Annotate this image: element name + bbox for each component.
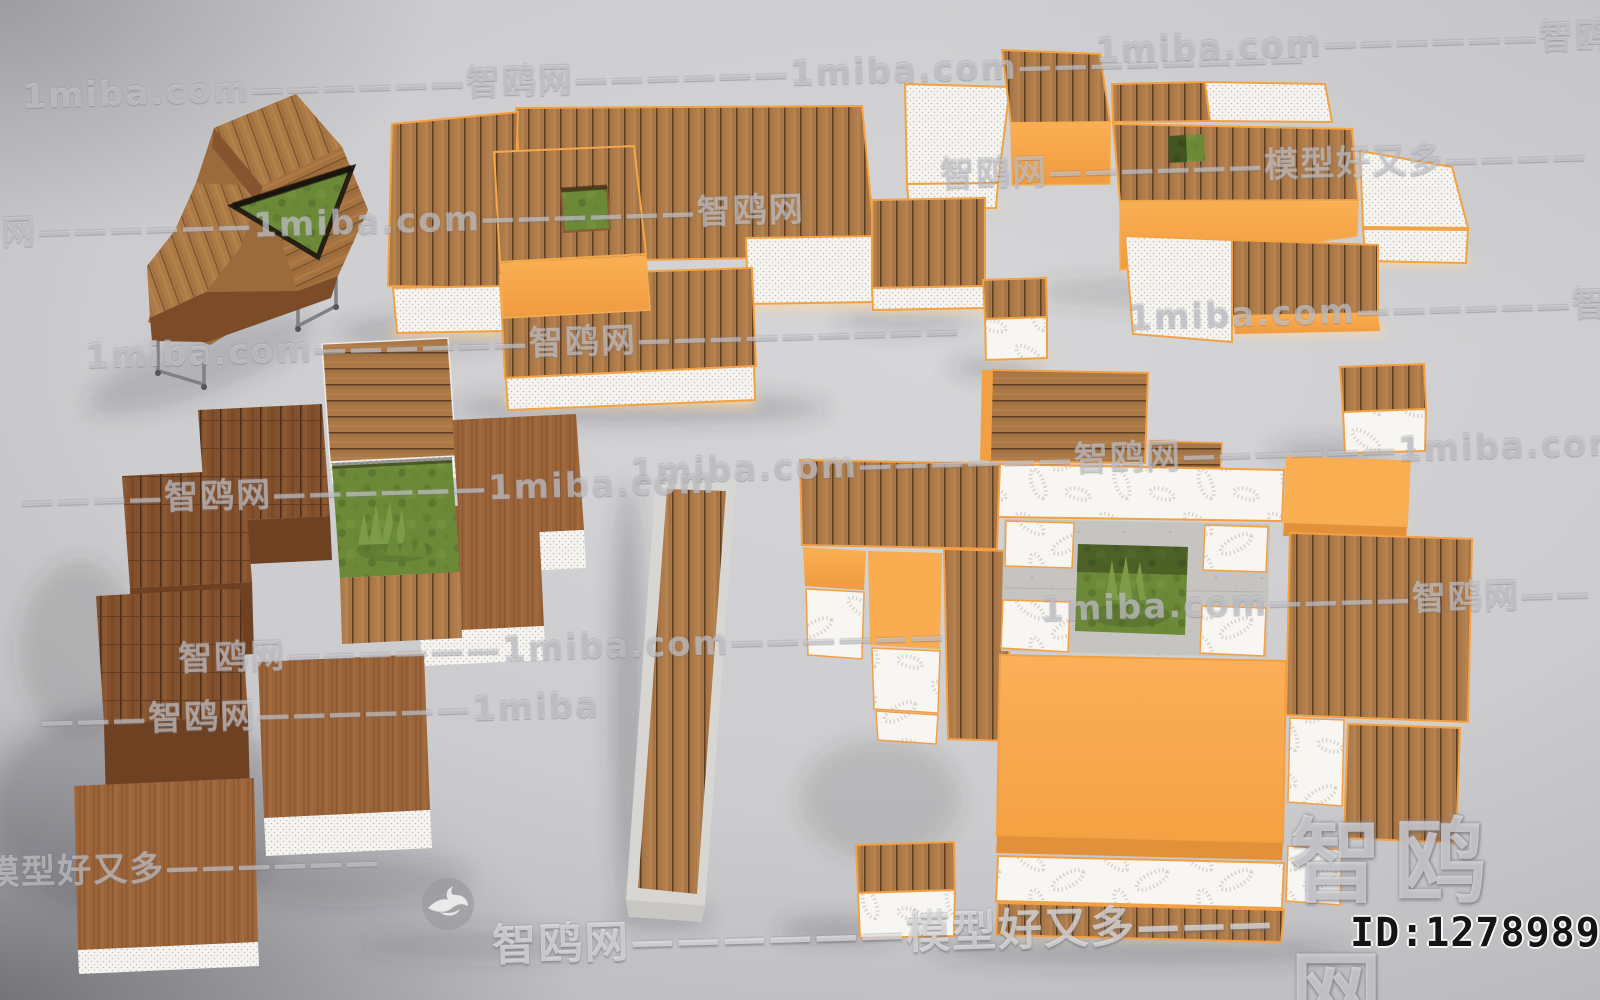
orange-face [868,551,942,649]
deck-orange-edge [1233,313,1380,334]
back-deck-white-skirt [746,236,877,304]
orange-face [803,547,866,590]
leaf-tile [1200,606,1266,656]
box-top [122,470,252,588]
box-top [322,338,456,462]
box-top [96,588,248,724]
planter-shade [561,187,607,190]
raised-orange-box [1284,457,1410,527]
inset-planter-shade [1168,135,1187,163]
raised-planter-box-front [500,256,650,318]
leaf-panel [872,648,940,713]
l-deck-arm [800,460,1000,549]
right-deck-upper [1286,533,1472,722]
platform-cluster-center [388,106,877,410]
small-cube-top [983,278,1047,319]
leaf-tile [1005,521,1074,568]
wood-box-orange-front [1011,122,1110,185]
leaf-tile [1001,600,1070,652]
small-cube-bottom-center [856,842,955,938]
long-bench [626,478,736,922]
leaf-band-top [998,464,1284,521]
leaf-band-bottom [996,856,1284,908]
wood-box-top [1002,50,1110,123]
box-top [74,778,258,950]
white-box-top [905,84,1010,184]
low-wood-deck [872,198,985,288]
top-deck [990,370,1148,463]
leaf-panel [876,711,938,744]
deck-wood-top [1232,240,1378,316]
render-stage: 1miba.com——————智鸥网—————— 1miba.com——————… [0,0,1600,1000]
left-deck-white-skirt [393,286,503,333]
half-white-panel [1205,82,1332,122]
white-cube-top [1360,151,1468,228]
leaf-panel [1286,846,1342,905]
small-cube-upper-right [1340,364,1426,453]
half-wood-panel [1112,82,1210,122]
box-top [258,654,430,818]
deck-white-side [1125,236,1232,342]
small-cube-front [985,317,1047,360]
planter-shade [1077,544,1188,575]
box-white-rim [264,810,432,856]
square-planter [561,187,610,232]
right-deck-lower [1344,724,1460,843]
leaf-tile [1203,525,1268,572]
leaf-panel [1288,718,1344,806]
render-canvas [0,0,1600,1000]
wood-band-bottom [996,903,1284,942]
planter-wood-side [340,572,462,644]
big-orange-panel [997,655,1286,843]
leaf-panel [806,589,864,659]
tall-box-top [1113,124,1358,201]
low-wood-deck-skirt [872,286,985,310]
